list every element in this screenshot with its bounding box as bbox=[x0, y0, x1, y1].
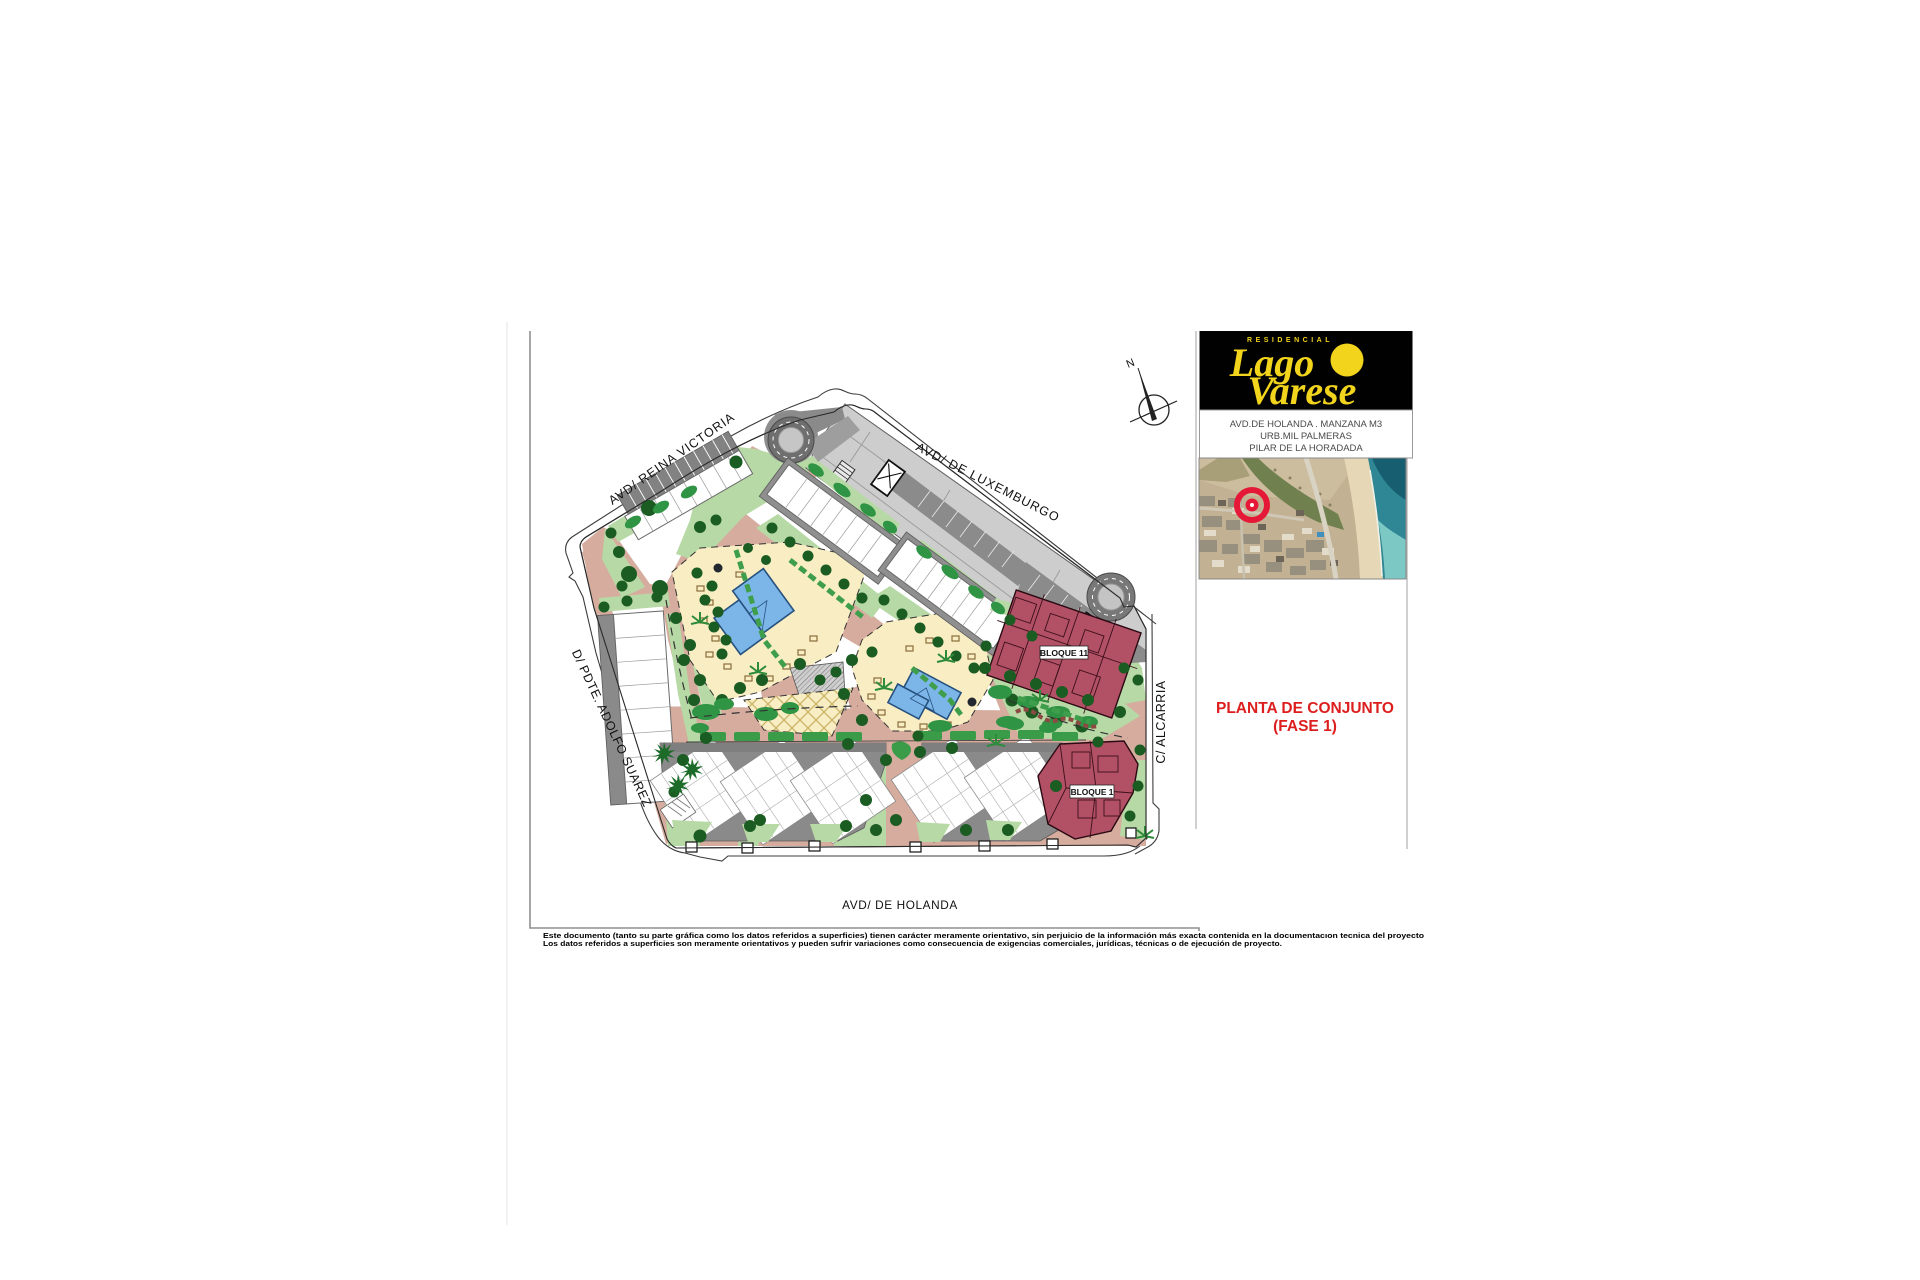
svg-text:BLOQUE 11: BLOQUE 11 bbox=[1040, 648, 1088, 658]
svg-text:AVD.DE HOLANDA . MANZANA M3: AVD.DE HOLANDA . MANZANA M3 bbox=[1230, 419, 1382, 430]
svg-text:(FASE 1): (FASE 1) bbox=[1273, 718, 1337, 735]
svg-text:AVD/ DE HOLANDA: AVD/ DE HOLANDA bbox=[842, 898, 958, 912]
svg-text:PLANTA DE CONJUNTO: PLANTA DE CONJUNTO bbox=[1216, 700, 1394, 717]
svg-text:PILAR DE LA HORADADA: PILAR DE LA HORADADA bbox=[1249, 443, 1363, 454]
svg-text:Varese: Varese bbox=[1248, 368, 1357, 413]
svg-text:Los datos referidos a superfic: Los datos referidos a superficies son me… bbox=[543, 939, 1282, 948]
svg-text:URB.MIL PALMERAS: URB.MIL PALMERAS bbox=[1260, 431, 1352, 442]
svg-text:BLOQUE 1: BLOQUE 1 bbox=[1071, 787, 1114, 797]
svg-text:C/ ALCARRIA: C/ ALCARRIA bbox=[1154, 680, 1168, 763]
